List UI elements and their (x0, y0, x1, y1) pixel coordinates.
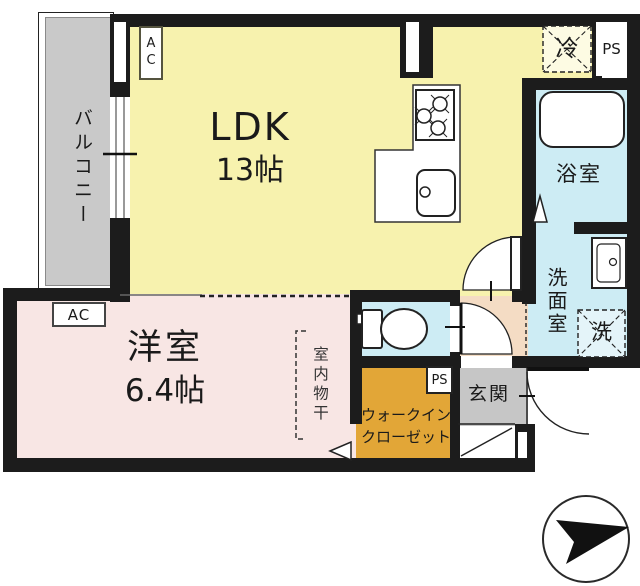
compass-icon (543, 496, 629, 582)
walk-in-closet-label-line2: クローゼット (353, 426, 459, 448)
walk-in-closet-label: ウォークイン クローゼット (353, 404, 459, 448)
window-lines (103, 97, 137, 218)
vanity-sink-icon (592, 238, 626, 288)
pipe-space-top: PS (596, 22, 627, 76)
closet-door-icon (330, 442, 351, 460)
balcony-label: バルコニー (62, 84, 92, 252)
ldk-size-label: 13帖 (180, 154, 320, 189)
pipe-space-top-label: PS (602, 40, 621, 58)
ac-unit-ldk-label: AC (144, 36, 159, 70)
entrance-porch (458, 368, 527, 456)
bathroom-label: 浴室 (536, 162, 622, 186)
western-room-label: 洋室 (100, 328, 230, 368)
entrance-label: 玄関 (456, 384, 522, 406)
front-door-icon (527, 369, 589, 434)
pipe-space-closet-label: PS (431, 373, 447, 388)
pipe-space-closet: PS (426, 366, 453, 394)
bathtub-icon (540, 92, 624, 147)
washroom-label: 洗面室 (543, 246, 567, 356)
walk-in-closet-label-line1: ウォークイン (353, 404, 459, 426)
ac-unit-western: AC (52, 302, 106, 327)
hallway-door-icon (461, 303, 512, 354)
kitchen-sink-icon (417, 170, 455, 216)
bathroom-door-icon (533, 196, 547, 222)
refrigerator-label: 冷 (543, 36, 591, 62)
washing-machine-label: 洗 (578, 320, 625, 344)
floor-plan: LDK 13帖 洋室 6.4帖 バルコニー 浴室 洗面室 玄関 冷 洗 PS P… (0, 0, 640, 586)
western-room-size-label: 6.4帖 (100, 374, 230, 410)
ac-unit-ldk: AC (139, 26, 163, 80)
indoor-drying-label: 室内物干 (304, 333, 328, 437)
ac-unit-western-label: AC (68, 306, 90, 324)
toilet-icon (357, 309, 427, 349)
ldk-room-label: LDK (180, 106, 320, 150)
